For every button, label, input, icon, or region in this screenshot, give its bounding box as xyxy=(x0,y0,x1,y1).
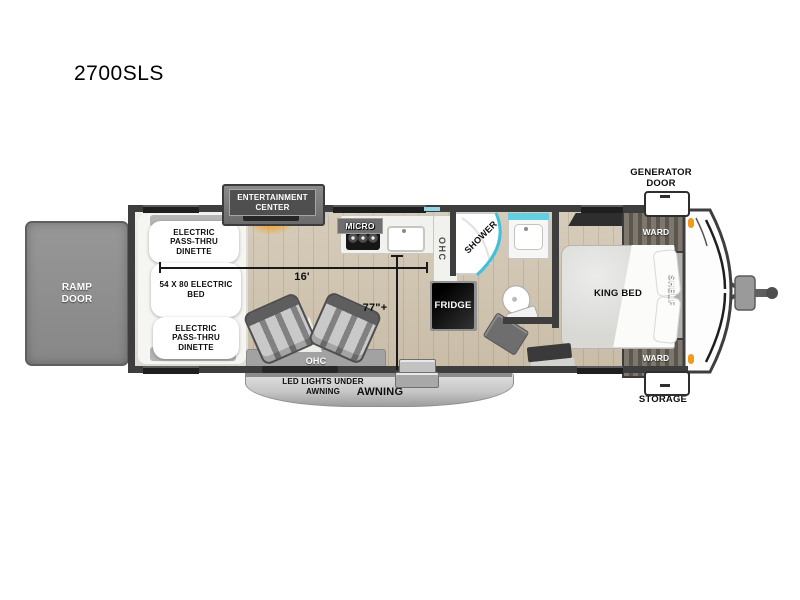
electric-bed-cushion: 54 X 80 ELECTRIC BED xyxy=(151,263,241,317)
marker-light-top-icon xyxy=(688,218,694,228)
length-dim-tick-left xyxy=(159,262,161,273)
propane-cover-icon xyxy=(735,276,755,310)
kitchen-sink-icon xyxy=(387,226,425,252)
fridge-label: FRIDGE xyxy=(434,300,471,311)
length-dim-tick-right xyxy=(426,262,428,273)
wall-rear xyxy=(128,205,135,373)
width-dimension-line xyxy=(396,256,398,370)
dinette-cushion-bottom: ELECTRIC PASS-THRU DINETTE xyxy=(153,317,239,359)
fridge: FRIDGE xyxy=(432,283,474,329)
kitchen-window-glass xyxy=(424,207,440,211)
wardrobe-top-label: WARD xyxy=(643,227,670,237)
bath-faucet-icon xyxy=(524,227,528,231)
ramp-door-label: RAMP DOOR xyxy=(54,282,100,306)
faucet-icon xyxy=(402,229,406,233)
garage-top-window xyxy=(143,205,199,213)
vanity-counter-accent xyxy=(508,213,549,220)
bath-wall-right xyxy=(552,212,559,328)
dinette-top-label: ELECTRIC PASS-THRU DINETTE xyxy=(162,228,226,257)
bath-wall-bottom xyxy=(503,317,559,324)
king-bed-label: KING BED xyxy=(588,288,648,299)
entertainment-center-label: ENTERTAINMENT CENTER xyxy=(233,193,313,212)
living-ohc-cabinet xyxy=(262,366,338,373)
width-dim-tick-top xyxy=(391,255,403,257)
width-dimension-label: 77"+ xyxy=(356,302,394,315)
cap-body xyxy=(684,210,731,372)
microwave: MICRO xyxy=(337,218,383,234)
garage-bottom-window xyxy=(143,366,199,374)
bath-wall-left xyxy=(450,212,456,276)
living-ohc-label: OHC xyxy=(296,356,336,367)
bedroom-bottom-window xyxy=(577,366,623,374)
kitchen-window xyxy=(333,205,426,213)
entry-step-lower xyxy=(395,372,439,388)
bath-sink-icon xyxy=(514,224,543,250)
shelf-label: SHELF xyxy=(667,275,677,306)
dinette-cushion-top: ELECTRIC PASS-THRU DINETTE xyxy=(149,221,239,263)
bedroom-ohc-cabinet xyxy=(568,213,630,226)
storage-door-handle-icon xyxy=(660,384,670,387)
ramp-door: RAMP DOOR xyxy=(25,221,129,366)
entertainment-center-panel: ENTERTAINMENT CENTER xyxy=(229,189,316,216)
micro-label: MICRO xyxy=(345,221,374,231)
dinette-bottom-label: ELECTRIC PASS-THRU DINETTE xyxy=(164,324,228,353)
generator-door-label: GENERATOR DOOR xyxy=(626,167,696,190)
floorplan-page: { "title": "2700SLS", "floorplan": { "ra… xyxy=(0,0,800,600)
wardrobe-bottom-label: WARD xyxy=(643,353,670,363)
electric-bed-label: 54 X 80 ELECTRIC BED xyxy=(158,280,234,299)
length-dimension-label: 16' xyxy=(284,271,320,284)
generator-door-handle-icon xyxy=(660,195,670,198)
marker-light-bottom-icon xyxy=(688,354,694,364)
front-cap xyxy=(672,198,784,384)
bedroom-top-window xyxy=(581,205,623,213)
kitchen-ohc-label: OHC xyxy=(436,237,447,262)
page-title: 2700SLS xyxy=(74,62,164,86)
hitch-ball-icon xyxy=(766,287,778,299)
length-dimension-line xyxy=(160,267,427,269)
